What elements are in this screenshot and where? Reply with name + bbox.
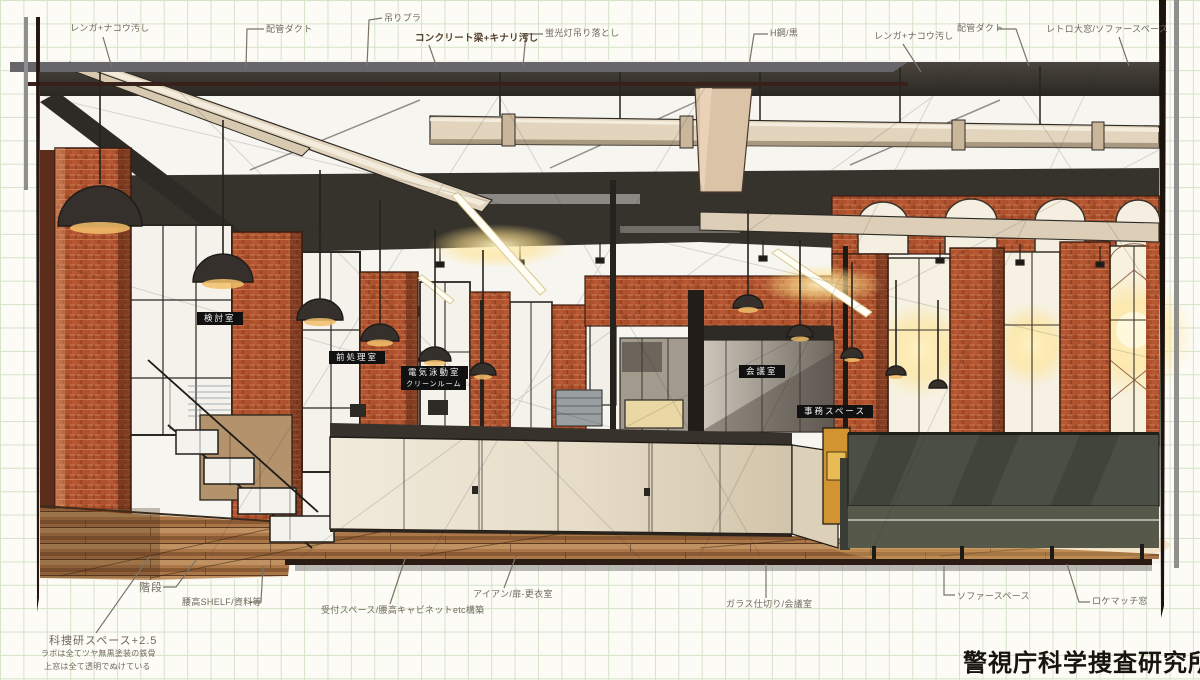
annotation-retro-window-sofa: レトロ大窓/ソファースペース <box>1046 25 1168 35</box>
annotation-brick-stain-right: レンガ+ナコウ汚し <box>874 32 954 42</box>
page-title: 警視庁科学捜査研究所 <box>963 643 1200 678</box>
room-label-office-space: 事務スペース <box>797 405 873 418</box>
annotation-glass-partition: ガラス仕切り/会議室 <box>726 600 812 610</box>
annotation-fluorescent-drop: 蛍光灯吊り落とし <box>545 29 619 39</box>
sketch-drawing <box>0 0 1200 680</box>
reception-counter <box>330 423 850 548</box>
concept-sketch-canvas: レンガ+ナコウ汚し 配管ダクト 吊りプラ コンクリート梁+キナリ汚し 蛍光灯吊り… <box>0 0 1200 680</box>
room-label-electrophoresis-room: 電気泳動室 <box>401 366 468 379</box>
room-label-study-room: 検討室 <box>197 312 243 325</box>
annotation-h-steel-black: H鋼/黒 <box>770 29 798 39</box>
annotation-concrete-beam: コンクリート梁+キナリ汚し <box>415 34 538 44</box>
annotation-stairs: 階段 <box>139 582 163 594</box>
room-label-clean-room: クリーンルーム <box>401 379 466 390</box>
annotation-pipe-duct-right: 配管ダクト <box>957 24 1004 34</box>
annotation-location-match-window: ロケマッチ窓 <box>1092 597 1148 607</box>
annotation-kasouken-space: 科捜研スペース+2.5 <box>49 635 157 647</box>
annotation-iron-door: アイアン/扉-更衣室 <box>473 590 553 600</box>
room-label-meeting-room: 会議室 <box>739 365 785 378</box>
sofa <box>840 432 1159 564</box>
annotation-waist-shelf: 腰高SHELF/資料等 <box>182 598 262 608</box>
annotation-brick-stain-left: レンガ+ナコウ汚し <box>70 24 150 34</box>
annotation-note-upper-window: 上窓は全て透明でぬけている <box>44 663 151 672</box>
annotation-sofa-space: ソファースペース <box>957 592 1030 602</box>
annotation-pipe-duct-left: 配管ダクト <box>266 25 313 35</box>
room-label-pretreatment-room: 前処理室 <box>329 351 385 364</box>
annotation-reception-space: 受付スペース/腰高キャビネットetc構築 <box>321 606 484 616</box>
annotation-hanging-pla: 吊りプラ <box>384 14 421 24</box>
annotation-note-lab-steel: ラボは全てツヤ無黒塗装の鉄骨 <box>41 650 156 659</box>
